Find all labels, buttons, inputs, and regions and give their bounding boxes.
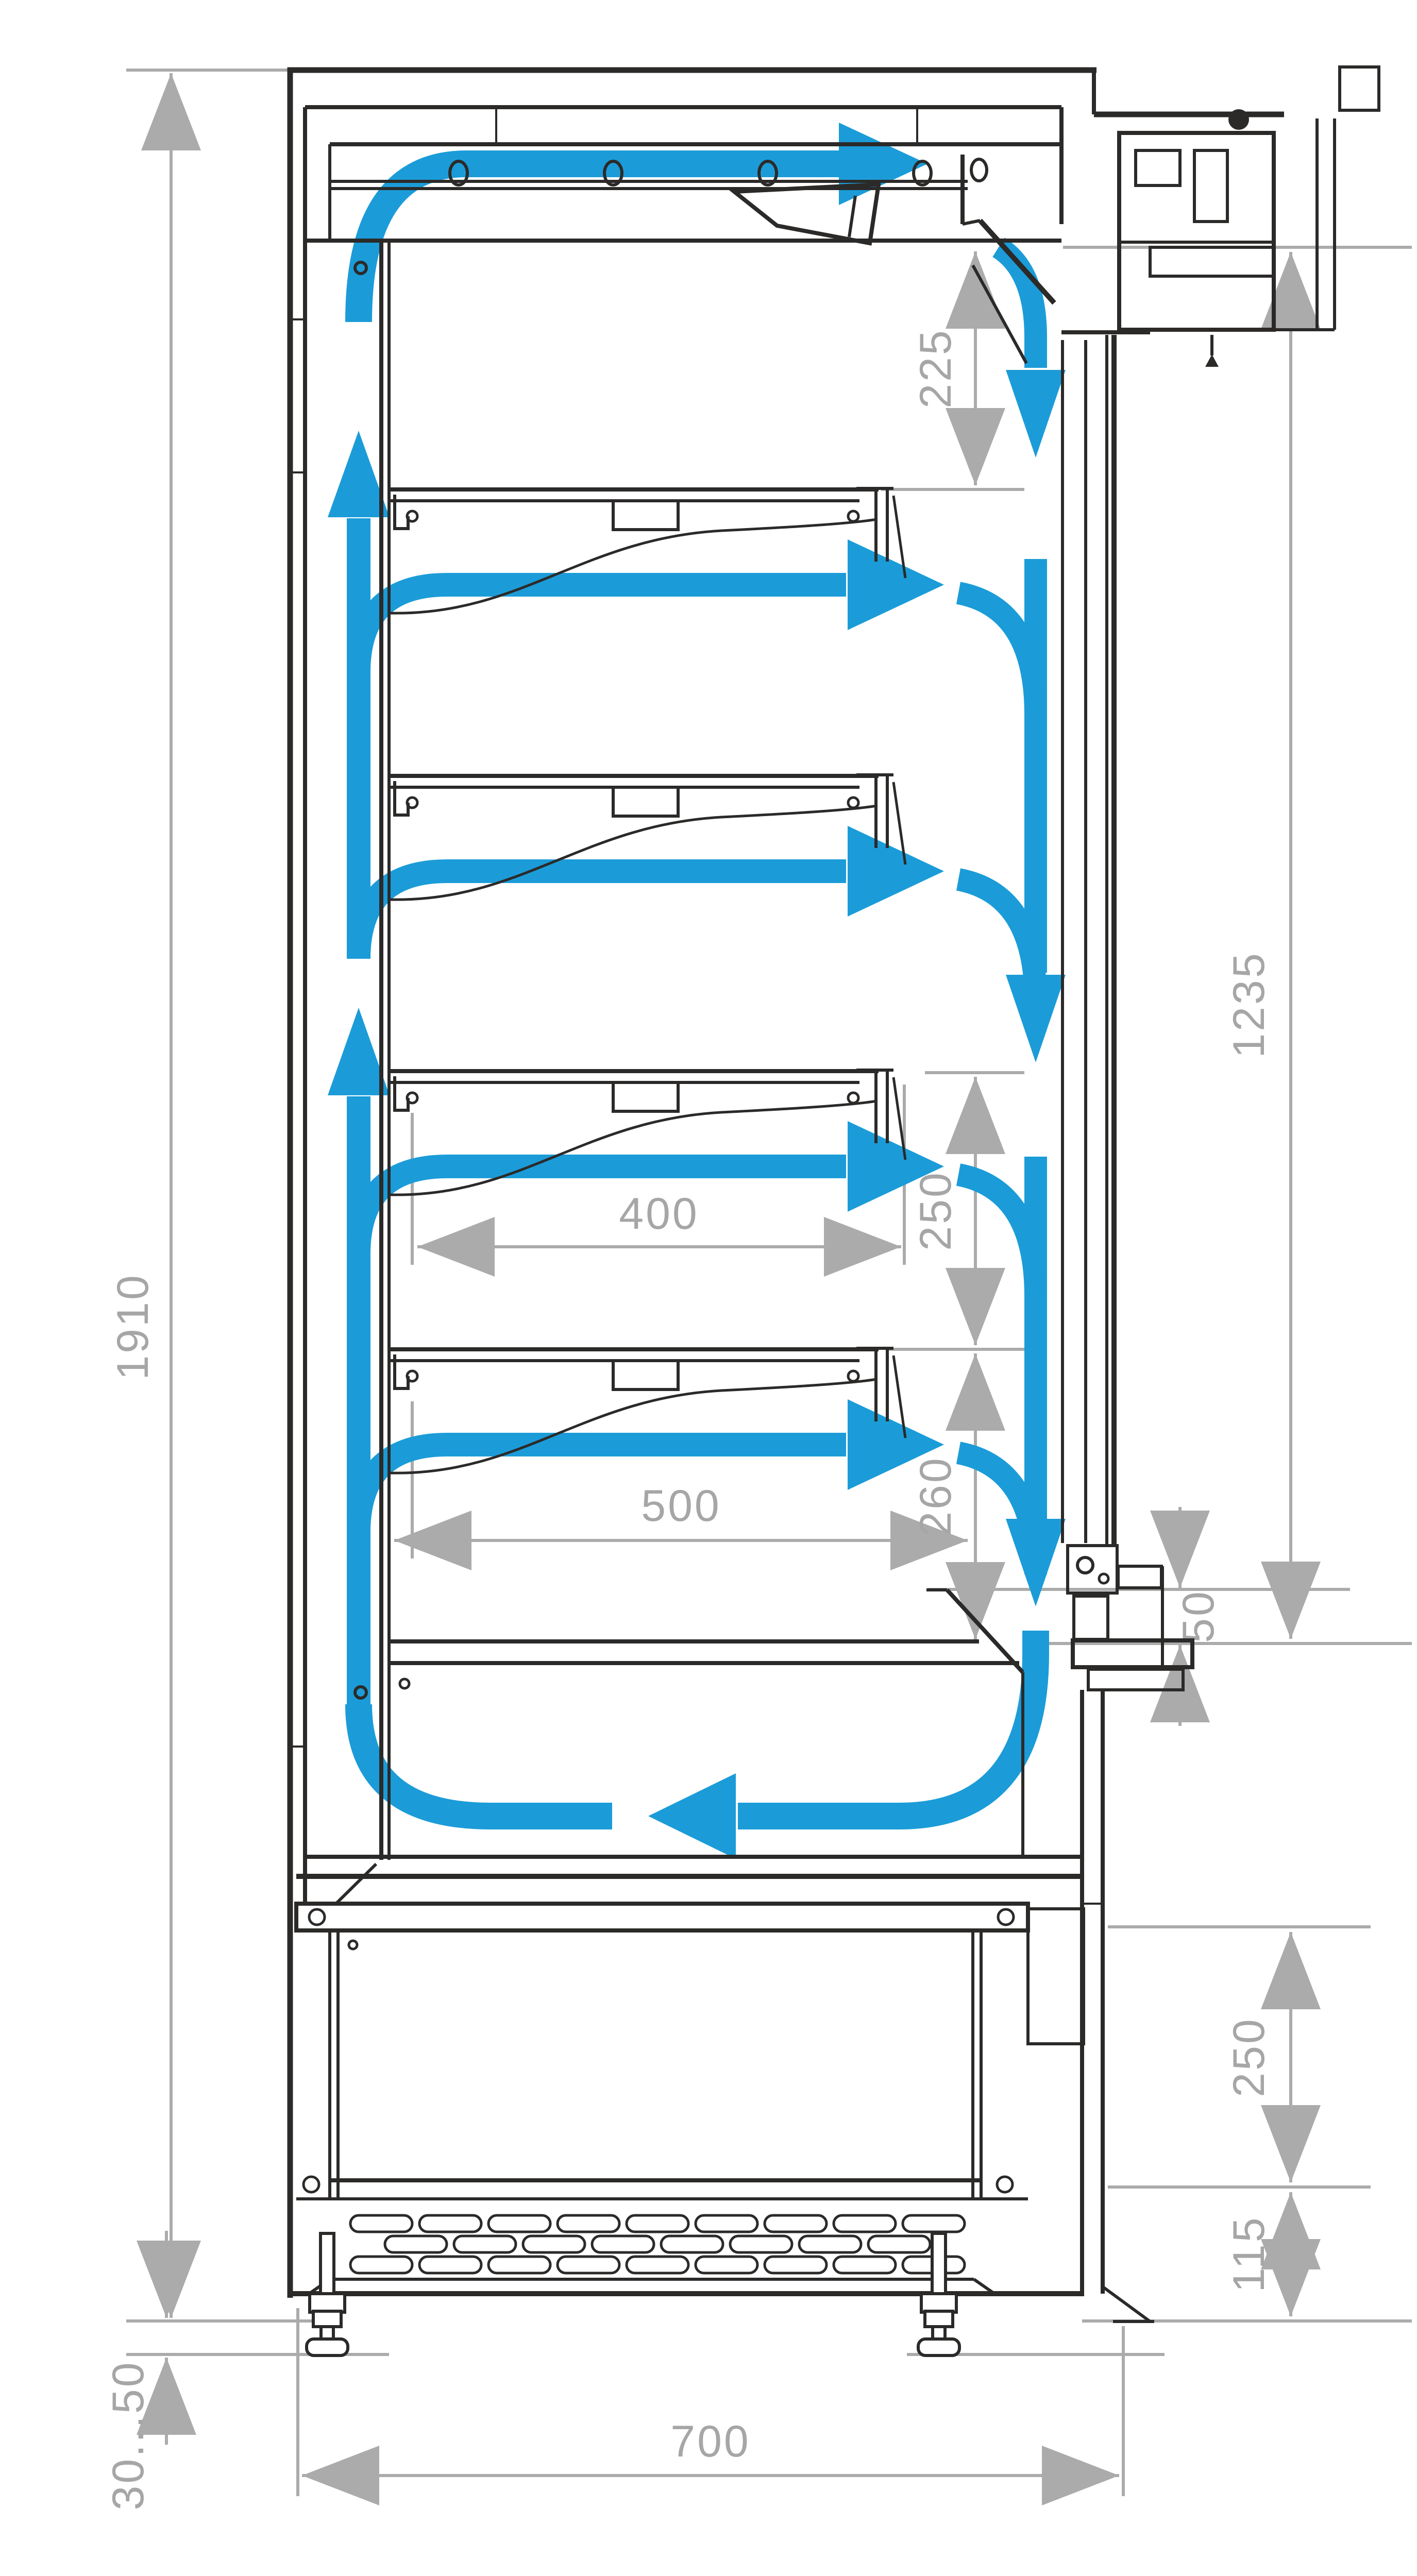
vent-slot [661,2236,723,2252]
frame-body [1119,133,1274,330]
airflow-right-arrowhead-icon [848,826,944,917]
shelf-hole [848,1371,858,1381]
screw [997,2177,1013,2192]
screw [303,2177,319,2192]
vent-slot [592,2236,654,2252]
vent-slot [385,2236,447,2252]
airflow-bottom-right-curve [738,1631,1036,1816]
vent-slot [558,2215,619,2232]
bottom-hinge-body [1074,1596,1108,1639]
foot-nut [925,2311,953,2327]
airflow-top-arrowhead-icon [839,123,927,205]
screw [400,1679,409,1688]
vent-slot [558,2257,619,2273]
dim-label-500: 500 [641,1481,721,1531]
cabinet-outline [288,67,1379,2355]
airflow-left-arrowhead-icon [648,1773,736,1859]
screw [309,1909,325,1925]
dim-label-foot-range: 30...50 [104,2361,153,2511]
airflow-merge-curve [958,593,1036,715]
deflector-hinge [963,221,980,224]
toe-bracket [1104,2287,1150,2321]
frame-pocket [1194,150,1227,222]
dim-label-115: 115 [1224,2215,1274,2292]
airflow-down-arrowhead-icon [1006,370,1066,457]
base-brace [336,1864,376,1904]
dim-label-1235: 1235 [1224,951,1274,1058]
airflow-bottom-left-curve [359,1704,612,1816]
dim-label-260: 260 [911,1456,960,1536]
shelf-light-cable [389,1101,877,1195]
airflow-merge-curve [958,1453,1036,1574]
airflow-shelf-jet [359,826,1036,1001]
screw [998,1909,1014,1925]
display-case-section-diagram: 1910 30...50 225 250 260 400 500 50 1235… [0,0,1417,2576]
base-front-bracket [1028,1909,1084,2044]
airflow-shelf-jet [359,539,1036,715]
foot-bracket [921,2294,956,2312]
lamp-housing-detail [849,196,855,237]
hinge-cap [1340,67,1379,110]
air-deflector-vane [980,221,1054,303]
base-top-rail [296,1904,1028,1930]
perforation-hole [971,159,987,181]
vent-slot [696,2215,757,2232]
latch-icon [1205,354,1219,367]
dim-label-225: 225 [911,328,960,409]
sill-lower [1088,1669,1183,1690]
shelf-air-jets [359,539,1036,1574]
vent-slot [834,2257,896,2273]
dim-label-250: 250 [911,1171,960,1251]
screw [349,1941,357,1949]
frame-pocket [1136,150,1180,185]
airflow-merge-curve [958,879,1036,1001]
frame-detail [1150,247,1274,276]
screw [1099,1574,1108,1583]
vent-slot [868,2236,930,2252]
shelf-hole [848,511,858,521]
vent-slot [903,2215,965,2232]
dim-label-700: 700 [670,2417,751,2466]
vent-slot [419,2257,481,2273]
vent-slot [799,2236,861,2252]
hinge-pin-icon [1228,109,1249,130]
dim-label-50: 50 [1174,1589,1223,1643]
foot-pad [307,2339,348,2355]
vent-slot [834,2215,896,2232]
dim-label-overall-height: 1910 [108,1273,158,1380]
dim-label-400: 400 [619,1189,699,1239]
ventilation-grille [350,2215,965,2273]
hinge-pin-icon [1077,1557,1093,1573]
shelf-bracket [613,1082,678,1111]
vent-slot [523,2236,585,2252]
foot-pad [918,2339,959,2355]
glass-door [1062,335,1114,1546]
hinge-bracket [1118,1566,1161,1588]
shelf-light-cable [389,806,877,900]
shelf-bracket [613,1361,678,1389]
vent-slot [696,2257,757,2273]
airflow-right-arrowhead-icon [848,539,944,630]
foot-bracket [310,2294,345,2312]
dimension-lines: 1910 30...50 225 250 260 400 500 50 1235… [104,70,1412,2511]
foot-nut [313,2311,341,2327]
vent-slot [765,2215,826,2232]
dim-label-250-base: 250 [1224,2017,1274,2097]
vent-slot [350,2257,412,2273]
vent-slot [454,2236,516,2252]
shelf-hole [848,798,858,808]
shelf-hole [848,1093,858,1103]
vent-slot [627,2215,688,2232]
shelf-bracket [613,501,678,530]
vent-slot [730,2236,792,2252]
vent-slot [488,2257,550,2273]
foot-thread [932,2233,946,2295]
foot-thread [320,2233,334,2295]
vent-slot [488,2215,550,2232]
shelf-light-cable [389,519,877,613]
door-top-frame [1061,67,1379,367]
vent-slot [765,2257,826,2273]
shelf-group [387,488,905,1473]
shelf-light-cable [389,1379,877,1473]
vent-slot [350,2215,412,2232]
return-air-grille [947,1590,1023,1672]
airflow-merge-curve [958,1175,1036,1296]
vent-slot [419,2215,481,2232]
leveling-foot [307,2233,348,2355]
shelf-bracket [613,787,678,816]
vent-slot [627,2257,688,2273]
